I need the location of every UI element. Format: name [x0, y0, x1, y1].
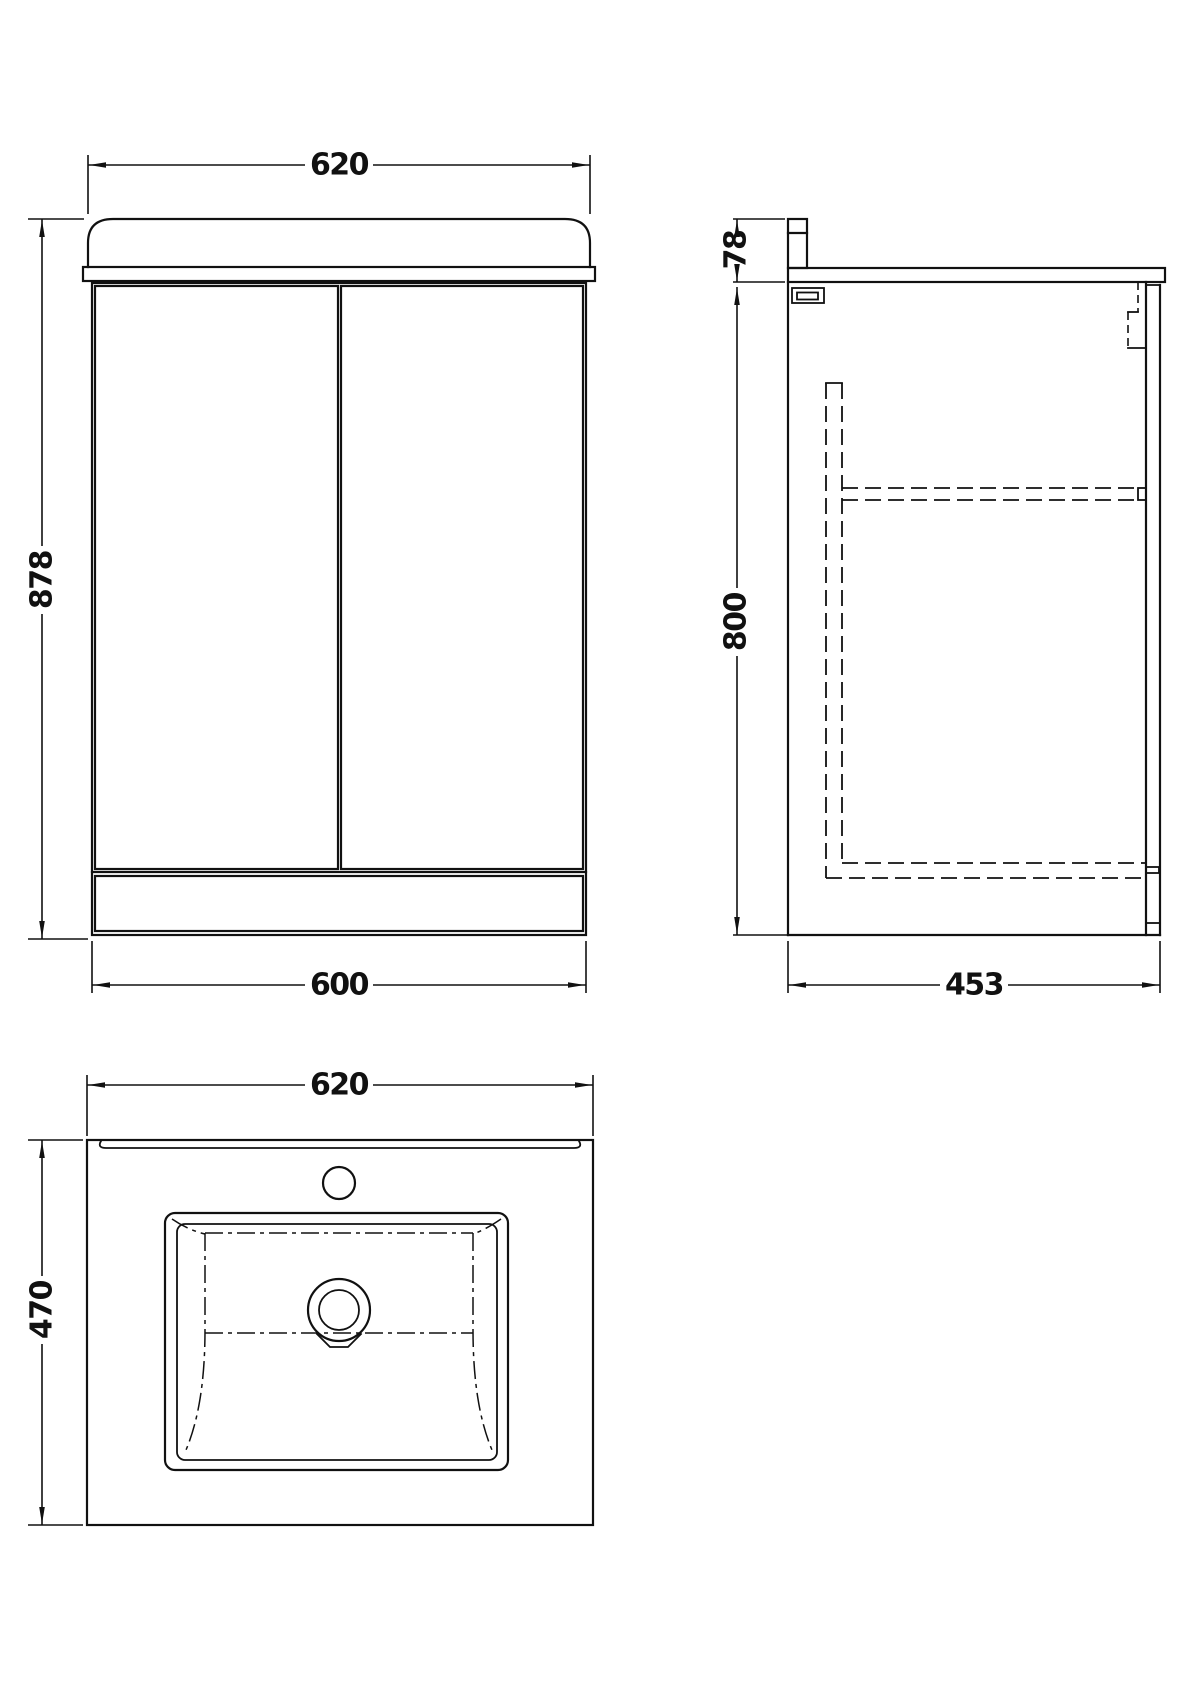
dim-label-front-width-bottom: 600: [310, 968, 369, 1003]
dimension-side-basin-height: 78: [719, 219, 786, 282]
arrow-up-icon: [39, 220, 45, 237]
dim-label-front-width-top: 620: [310, 148, 369, 183]
technical-drawing: 620 878 600: [0, 0, 1190, 1684]
arrow-left-icon: [789, 982, 806, 988]
dim-label-plan-depth: 470: [25, 1280, 60, 1339]
dimension-plan-depth: 470: [25, 1140, 84, 1525]
plan-bowl-slope-lines: [172, 1219, 501, 1450]
plan-drain: [308, 1279, 370, 1347]
plan-tap-hole: [323, 1167, 355, 1199]
front-door-right: [341, 286, 583, 869]
arrow-right-icon: [575, 1082, 592, 1088]
dim-label-front-height: 878: [25, 550, 60, 609]
plan-view: 620 470: [25, 1068, 594, 1526]
dimension-plan-width: 620: [87, 1068, 593, 1137]
drawing-canvas: 620 878 600: [0, 0, 1190, 1684]
dimension-front-height: 878: [25, 219, 89, 939]
dim-label-plan-width: 620: [310, 1068, 369, 1103]
dimension-side-depth: 453: [788, 941, 1160, 1003]
arrow-left-icon: [88, 1082, 105, 1088]
front-basin-outline: [88, 219, 590, 267]
side-worktop-slab: [788, 268, 1165, 282]
arrow-down-icon: [39, 1507, 45, 1524]
plan-drain-outer: [308, 1279, 370, 1341]
dimension-front-width-top: 620: [88, 148, 590, 215]
side-view: 78 800 453: [719, 219, 1166, 1003]
arrow-down-icon: [39, 921, 45, 938]
arrow-up-icon: [39, 1141, 45, 1158]
arrow-left-icon: [93, 982, 110, 988]
dim-label-side-depth: 453: [945, 968, 1003, 1003]
arrow-up-icon: [734, 288, 740, 305]
plan-back-edge: [100, 1141, 580, 1148]
front-plinth: [95, 876, 583, 931]
dimension-front-width-bottom: 600: [92, 941, 586, 1003]
dimension-side-cabinet-height: 800: [719, 287, 789, 935]
plan-drain-inner: [319, 1290, 359, 1330]
side-shelf-hidden: [842, 488, 1146, 500]
arrow-right-icon: [1142, 982, 1159, 988]
arrow-left-icon: [89, 162, 106, 168]
front-basin-rim: [83, 267, 595, 281]
dim-label-side-cabinet-height: 800: [719, 592, 754, 651]
arrow-right-icon: [572, 162, 589, 168]
side-hinge-detail: [1128, 282, 1146, 348]
front-view: 620 878 600: [25, 148, 596, 1003]
front-door-left: [95, 286, 338, 869]
side-fixing-clip-inner: [797, 293, 818, 300]
arrow-down-icon: [734, 917, 740, 934]
side-internal-panel-hidden: [826, 383, 1159, 878]
arrow-right-icon: [568, 982, 585, 988]
side-tap-upstand: [788, 219, 807, 268]
